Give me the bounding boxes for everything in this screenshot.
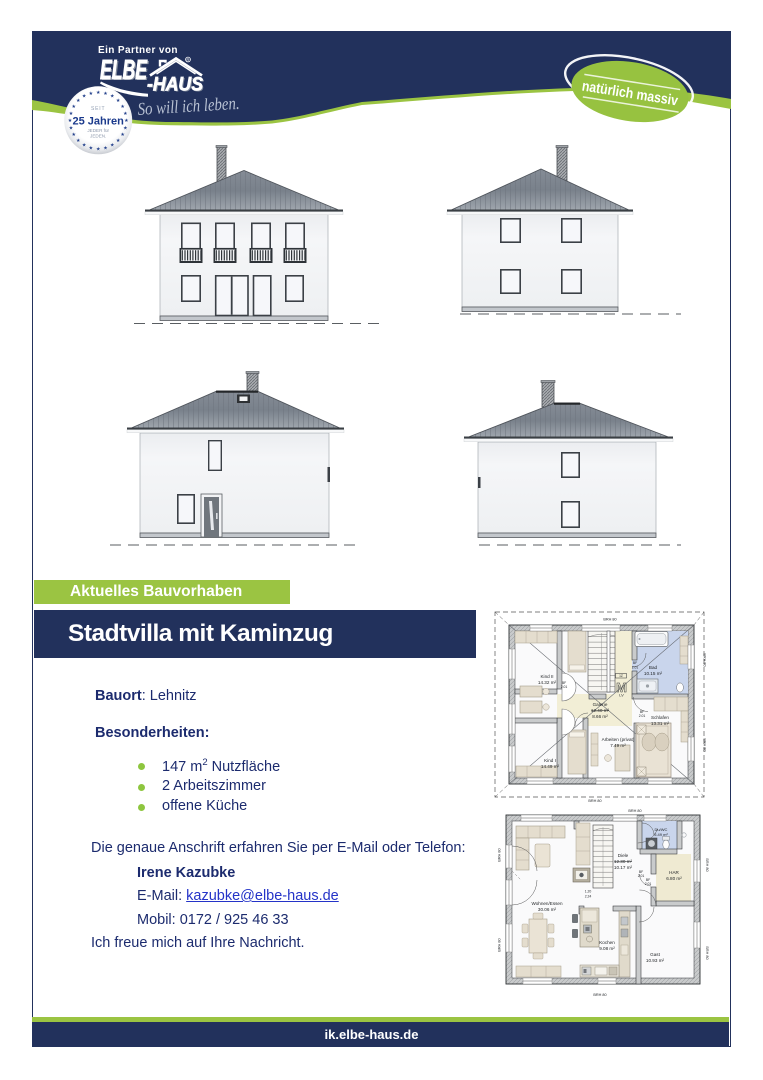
svg-text:Schlafen: Schlafen bbox=[651, 715, 669, 720]
svg-text:2.01: 2.01 bbox=[632, 666, 639, 670]
svg-text:★: ★ bbox=[123, 111, 128, 117]
svg-text:★: ★ bbox=[96, 146, 101, 152]
svg-text:6.80 m²: 6.80 m² bbox=[666, 876, 682, 881]
svg-text:Arbeiten (privat): Arbeiten (privat) bbox=[602, 737, 635, 742]
svg-text:★: ★ bbox=[110, 143, 115, 149]
svg-text:13.31 m²: 13.31 m² bbox=[651, 721, 670, 726]
svg-text:★: ★ bbox=[110, 94, 115, 100]
svg-text:8.66 m²: 8.66 m² bbox=[592, 714, 608, 719]
svg-text:BRH 80: BRH 80 bbox=[628, 809, 641, 813]
svg-text:LV: LV bbox=[619, 693, 624, 698]
svg-text:Kind II: Kind II bbox=[540, 674, 553, 679]
svg-text:1.20: 1.20 bbox=[585, 890, 592, 894]
svg-text:HAR: HAR bbox=[669, 870, 679, 875]
svg-text:2.01: 2.01 bbox=[561, 685, 568, 689]
svg-text:2.01: 2.01 bbox=[639, 714, 646, 718]
svg-text:10.17 m²: 10.17 m² bbox=[614, 865, 633, 870]
svg-text:★: ★ bbox=[76, 138, 81, 144]
svg-text:10.15 m²: 10.15 m² bbox=[644, 671, 663, 676]
svg-text:14.32 m²: 14.32 m² bbox=[538, 680, 557, 685]
svg-text:Diele: Diele bbox=[618, 853, 629, 858]
svg-text:★: ★ bbox=[116, 138, 121, 144]
svg-text:BRH 80: BRH 80 bbox=[703, 653, 707, 666]
svg-text:2.24: 2.24 bbox=[585, 895, 592, 899]
svg-text:JEDEN.: JEDEN. bbox=[90, 134, 106, 139]
svg-text:ELBE: ELBE bbox=[100, 54, 148, 85]
svg-text:2.01: 2.01 bbox=[638, 874, 645, 878]
svg-text:Gast: Gast bbox=[650, 952, 660, 957]
svg-text:BRH 80: BRH 80 bbox=[703, 738, 707, 751]
svg-text:9.08 m²: 9.08 m² bbox=[599, 946, 615, 951]
svg-text:★: ★ bbox=[124, 118, 129, 124]
svg-text:★: ★ bbox=[123, 125, 128, 131]
svg-text:7.49 m²: 7.49 m² bbox=[610, 743, 626, 748]
svg-text:BRH 80: BRH 80 bbox=[593, 993, 606, 997]
svg-text:-HAUS: -HAUS bbox=[147, 74, 203, 96]
svg-text:★: ★ bbox=[82, 94, 87, 100]
svg-text:★: ★ bbox=[120, 104, 125, 110]
svg-text:★: ★ bbox=[76, 98, 81, 104]
svg-text:BRH 80: BRH 80 bbox=[588, 799, 601, 803]
svg-text:★: ★ bbox=[72, 104, 77, 110]
svg-text:Galerie: Galerie bbox=[593, 702, 608, 707]
svg-text:Bad: Bad bbox=[649, 665, 658, 670]
svg-text:SEIT: SEIT bbox=[91, 106, 105, 112]
svg-text:★: ★ bbox=[103, 145, 108, 151]
svg-text:1Z: 1Z bbox=[619, 674, 623, 678]
svg-text:2.01: 2.01 bbox=[645, 882, 652, 886]
svg-text:10.93 m²: 10.93 m² bbox=[646, 958, 665, 963]
svg-text:★: ★ bbox=[82, 143, 87, 149]
svg-text:BRH 80: BRH 80 bbox=[603, 618, 616, 622]
svg-text:★: ★ bbox=[120, 132, 125, 138]
svg-text:JEDER für: JEDER für bbox=[87, 128, 109, 133]
svg-text:5.49 m²: 5.49 m² bbox=[654, 832, 668, 837]
svg-text:BRH 80: BRH 80 bbox=[498, 848, 502, 861]
svg-text:BRH 80: BRH 80 bbox=[498, 938, 502, 951]
svg-text:★: ★ bbox=[72, 132, 77, 138]
svg-text:14.49 m²: 14.49 m² bbox=[541, 764, 560, 769]
svg-text:Wohnen/Essen: Wohnen/Essen bbox=[531, 901, 563, 906]
svg-text:25 Jahren: 25 Jahren bbox=[73, 116, 125, 128]
svg-text:★: ★ bbox=[103, 91, 108, 97]
svg-text:Kochen: Kochen bbox=[599, 940, 615, 945]
svg-text:★: ★ bbox=[89, 91, 94, 97]
svg-text:BF: BF bbox=[633, 661, 637, 665]
svg-text:BRH 80: BRH 80 bbox=[705, 858, 709, 871]
svg-text:Kind I: Kind I bbox=[544, 758, 556, 763]
svg-text:★: ★ bbox=[89, 145, 94, 151]
svg-text:BRH 80: BRH 80 bbox=[705, 946, 709, 959]
svg-text:★: ★ bbox=[96, 90, 101, 96]
svg-text:30.06 m²: 30.06 m² bbox=[538, 907, 557, 912]
